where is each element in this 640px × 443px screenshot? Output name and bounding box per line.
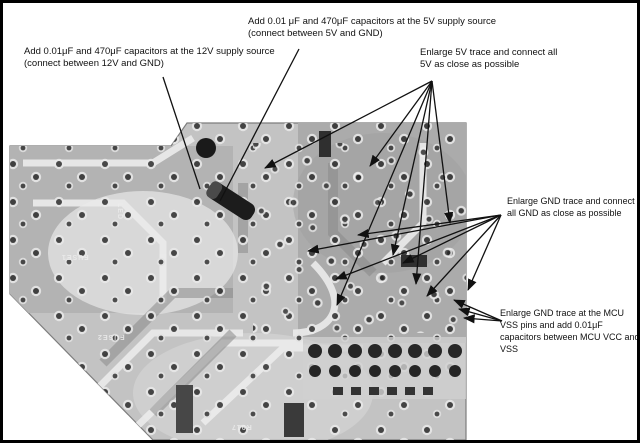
annotation-enlarge-5v-trace: Enlarge 5V trace and connect all 5V as c…: [420, 47, 570, 71]
silkscreen-label-led: LED: [116, 203, 123, 220]
annotation-enlarge-gnd-mcu: Enlarge GND trace at the MCU VSS pins an…: [500, 307, 640, 355]
silkscreen-label-fuse1: FUSE1: [61, 253, 89, 260]
silkscreen-label-fuse2: FUSE2: [97, 333, 125, 340]
round-capacitor: [196, 138, 216, 158]
component-bar: [284, 403, 304, 437]
annotation-enlarge-gnd-trace: Enlarge GND trace and connect all GND as…: [507, 195, 637, 219]
component-bar: [176, 385, 193, 433]
pcb-board: [10, 123, 473, 440]
annotation-add-caps-12v: Add 0.01μF and 470μF capacitors at the 1…: [24, 46, 276, 70]
silkscreen-label-r917: R917: [231, 423, 252, 430]
annotation-add-caps-5v: Add 0.01 μF and 470μF capacitors at the …: [248, 16, 513, 40]
figure-frame: FUSE1 FUSE2 LED R917 Add 0.01 μF and 470…: [0, 0, 640, 443]
connector-pads: [303, 337, 466, 399]
